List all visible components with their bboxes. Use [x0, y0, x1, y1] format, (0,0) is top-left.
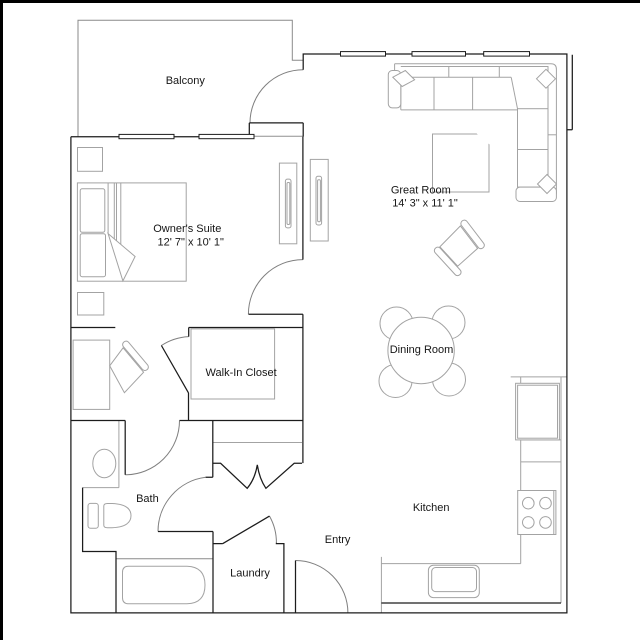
svg-text:Balcony: Balcony	[166, 75, 206, 87]
svg-text:12' 7" x 10' 1": 12' 7" x 10' 1"	[157, 237, 224, 249]
svg-text:Kitchen: Kitchen	[413, 502, 450, 514]
svg-text:Laundry: Laundry	[230, 568, 270, 580]
svg-text:Dining Room: Dining Room	[390, 344, 454, 356]
svg-text:Great Room: Great Room	[391, 185, 451, 197]
svg-text:Owner's Suite: Owner's Suite	[153, 223, 221, 235]
svg-text:14' 3" x 11' 1": 14' 3" x 11' 1"	[392, 197, 458, 209]
svg-text:Bath: Bath	[136, 493, 159, 505]
svg-text:Entry: Entry	[325, 534, 351, 546]
svg-text:Walk-In Closet: Walk-In Closet	[206, 367, 277, 379]
